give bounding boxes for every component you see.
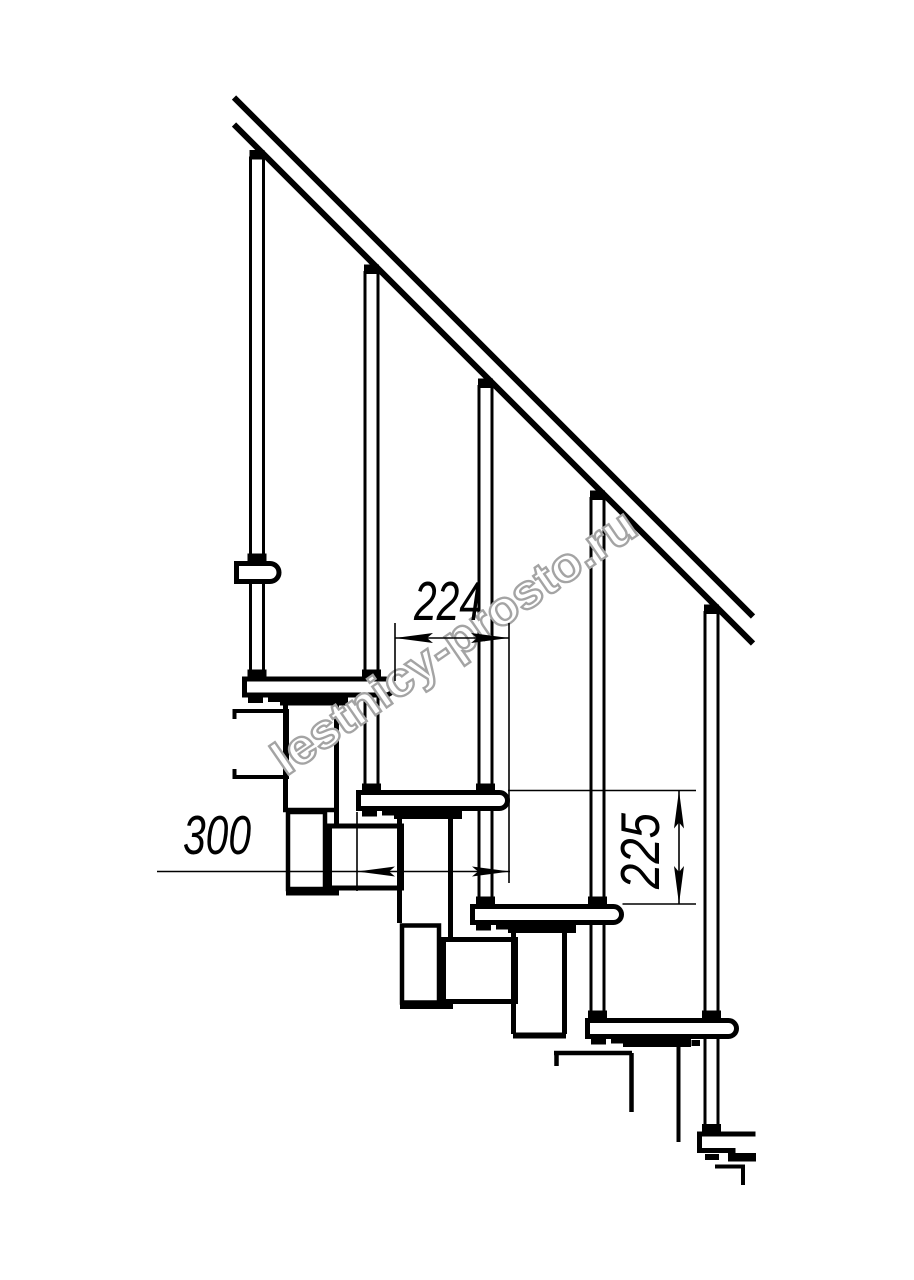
svg-text:225: 225 bbox=[609, 813, 671, 890]
svg-text:224: 224 bbox=[413, 570, 482, 632]
svg-text:300: 300 bbox=[183, 804, 251, 866]
